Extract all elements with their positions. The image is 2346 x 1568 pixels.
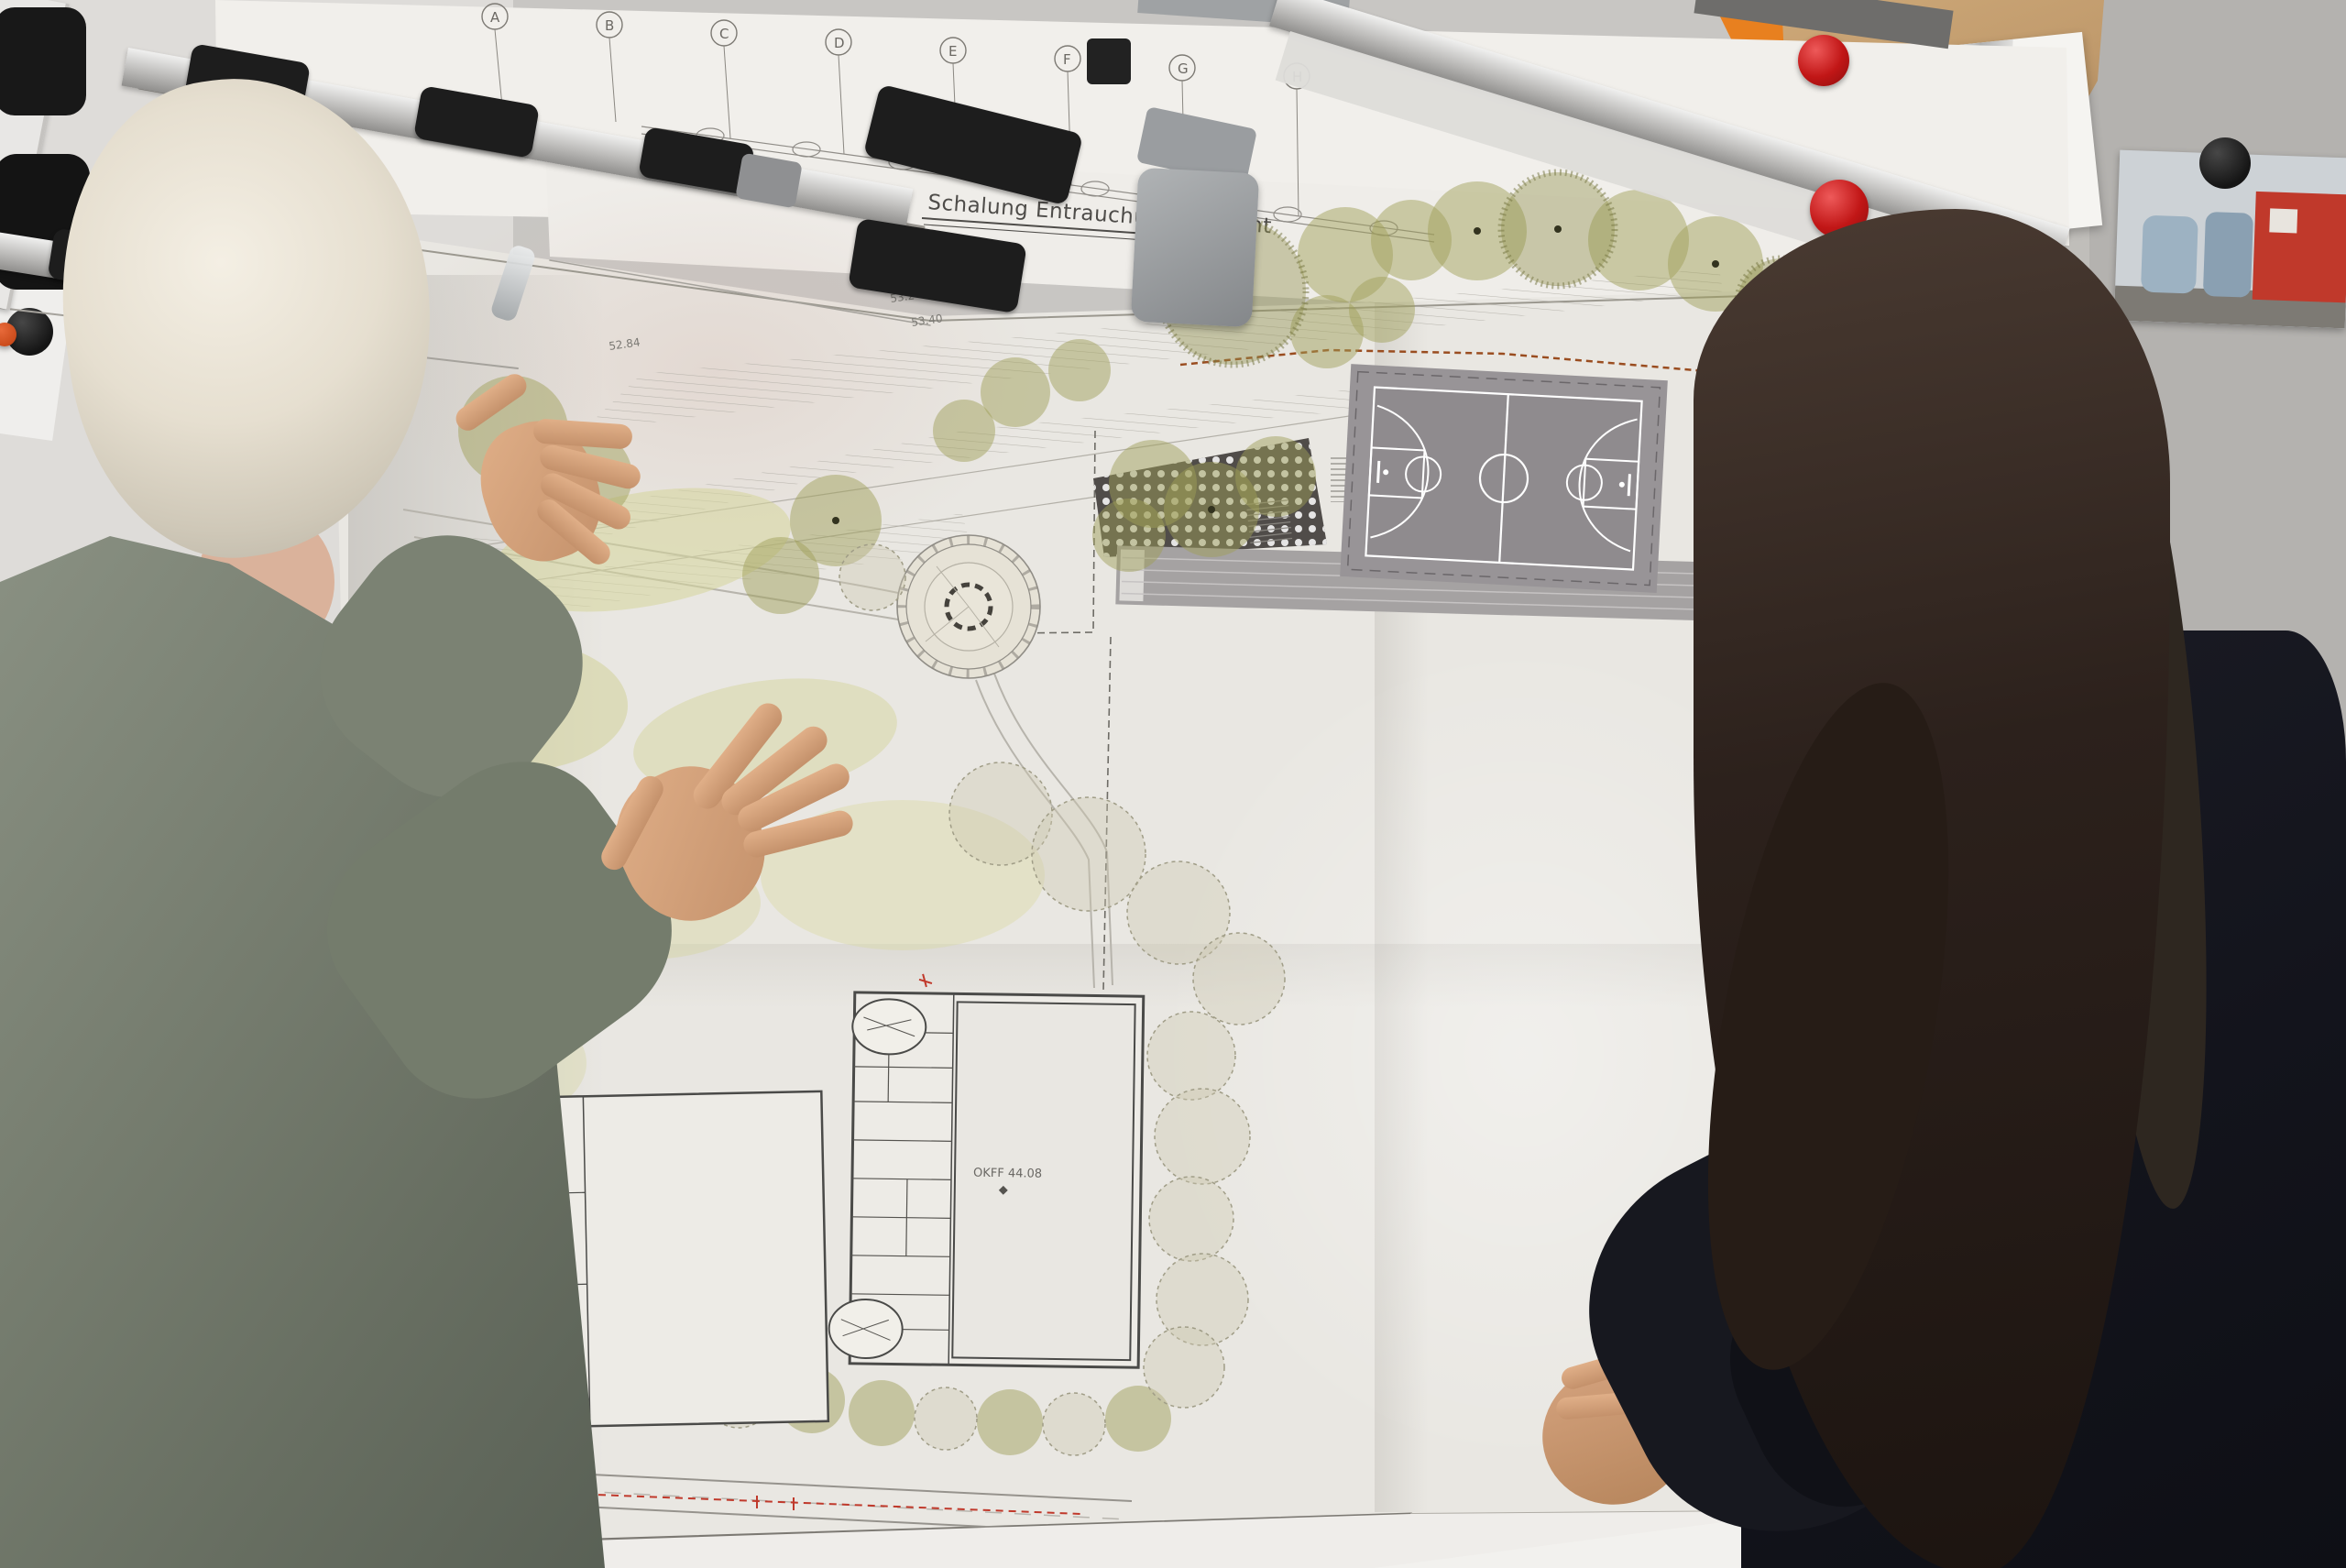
rail-bracket [1087,38,1131,84]
photo-tank [2141,215,2198,294]
photo-red-truck [2253,192,2346,302]
rail-end-knob [0,7,86,115]
photo-scene: Z IKON [0,0,2346,1568]
round-badge [2199,137,2251,189]
clamp-pad [1131,168,1260,328]
photo-truck-window [2269,208,2297,233]
magnet [1798,35,1849,86]
photo-tank [2203,212,2253,298]
man-hand-on-plan [566,640,850,956]
man-hand-raised [458,383,669,598]
